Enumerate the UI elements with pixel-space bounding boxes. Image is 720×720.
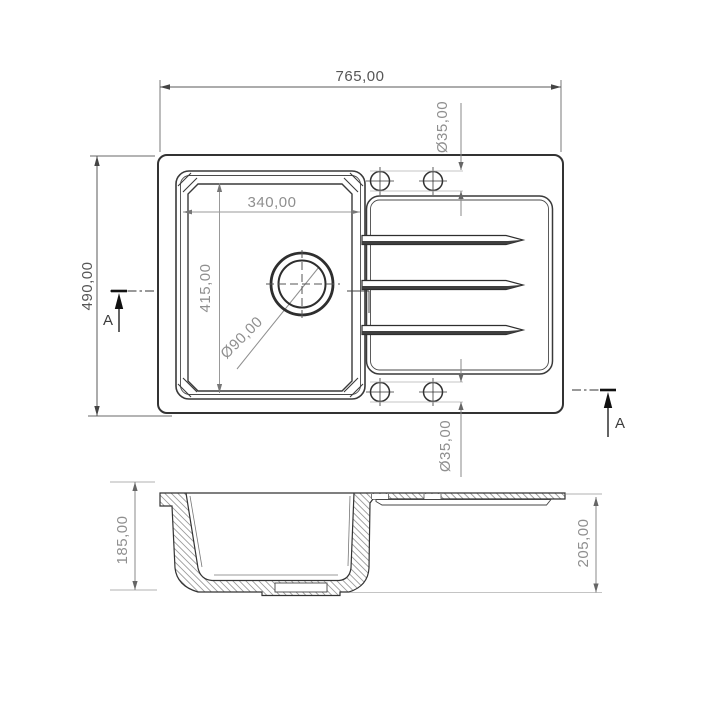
dim-tap-hole-top: Ø35,00 <box>370 101 464 216</box>
dim-overall-height: 205,00 <box>350 494 602 593</box>
dim-bowl-inner-depth: 185,00 <box>110 482 157 590</box>
dim-bowl-depth-label: 415,00 <box>197 264 214 313</box>
top-view: 765,00 490,00 340,00 415,00 Ø90,00 <box>79 68 625 477</box>
drainboard-grooves <box>362 236 523 335</box>
dim-bowl-width: 340,00 <box>183 194 360 214</box>
dim-tap-hole-bottom-label: Ø35,00 <box>437 420 454 472</box>
section-view: 185,00 205,00 <box>110 482 602 596</box>
drainboard <box>362 196 553 374</box>
technical-drawing-page: 765,00 490,00 340,00 415,00 Ø90,00 <box>0 0 720 720</box>
dim-overall-height-label: 205,00 <box>575 519 592 568</box>
section-marker-a-right: A <box>572 390 625 437</box>
section-bowl-far-edges <box>190 496 350 575</box>
dim-drain-diameter-label: Ø90,00 <box>217 313 266 362</box>
dim-tap-hole-bottom: Ø35,00 <box>370 359 464 477</box>
dim-bowl-inner-depth-label: 185,00 <box>114 516 131 565</box>
dim-overall-width-label: 765,00 <box>336 68 385 85</box>
section-body <box>160 493 565 596</box>
dim-overall-width: 765,00 <box>160 68 561 152</box>
section-label-a-right: A <box>615 415 625 432</box>
section-marker-a-left: A <box>103 291 156 332</box>
dim-bowl-width-label: 340,00 <box>248 194 297 211</box>
drain-hole <box>237 250 369 369</box>
sink-drawing-svg: 765,00 490,00 340,00 415,00 Ø90,00 <box>0 0 720 720</box>
section-drainboard-lip <box>376 500 551 506</box>
section-drain-recess <box>275 583 327 592</box>
dim-overall-depth-label: 490,00 <box>79 262 96 311</box>
dim-bowl-depth: 415,00 <box>197 183 222 393</box>
section-label-a-left: A <box>103 312 113 329</box>
dim-tap-hole-top-label: Ø35,00 <box>434 101 451 153</box>
